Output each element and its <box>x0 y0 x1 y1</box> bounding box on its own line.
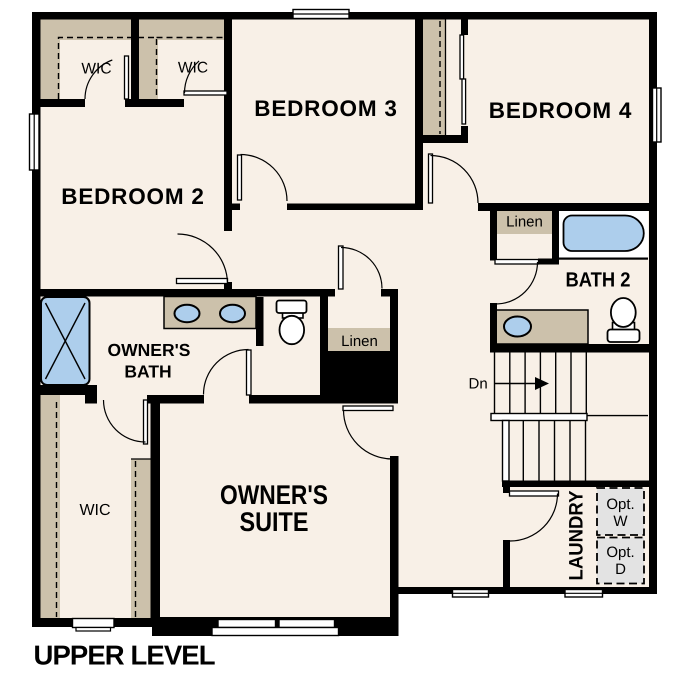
svg-text:BEDROOM 2: BEDROOM 2 <box>61 184 204 209</box>
svg-text:Opt.: Opt. <box>606 496 634 513</box>
svg-text:W: W <box>613 513 628 530</box>
svg-text:Linen: Linen <box>506 214 543 231</box>
svg-text:BATH 2: BATH 2 <box>566 269 631 292</box>
svg-text:UPPER LEVEL: UPPER LEVEL <box>34 640 215 671</box>
svg-text:LAUNDRY: LAUNDRY <box>566 491 588 581</box>
svg-text:BATH: BATH <box>124 362 171 382</box>
svg-text:D: D <box>615 561 626 578</box>
svg-text:BEDROOM 3: BEDROOM 3 <box>254 96 397 121</box>
svg-text:WIC: WIC <box>79 502 110 519</box>
svg-text:Linen: Linen <box>341 333 378 350</box>
svg-text:OWNER'S: OWNER'S <box>220 480 328 510</box>
svg-text:BEDROOM 4: BEDROOM 4 <box>489 98 632 123</box>
svg-text:Opt.: Opt. <box>606 544 634 561</box>
svg-text:SUITE: SUITE <box>240 507 309 537</box>
svg-text:Dn: Dn <box>469 376 488 393</box>
svg-text:OWNER'S: OWNER'S <box>108 340 191 360</box>
svg-text:WIC: WIC <box>178 60 208 77</box>
svg-text:WIC: WIC <box>81 61 111 78</box>
